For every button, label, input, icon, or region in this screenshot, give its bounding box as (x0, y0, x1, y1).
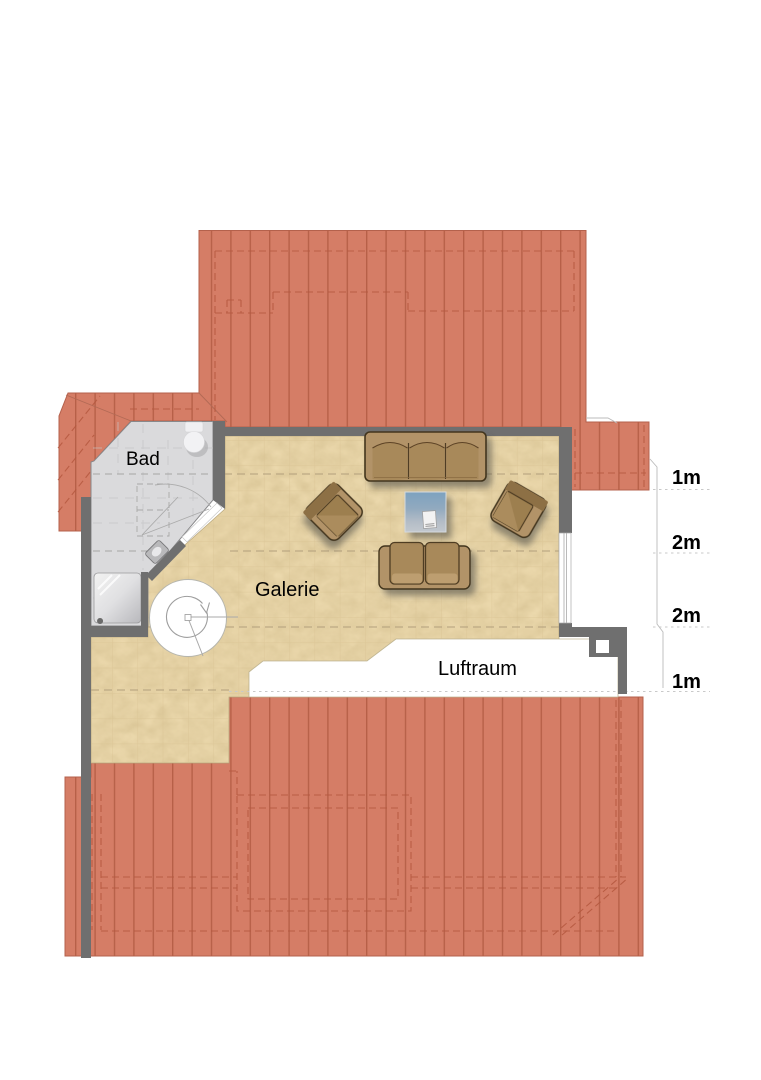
svg-text:1m: 1m (672, 671, 701, 693)
svg-text:2m: 2m (672, 532, 701, 554)
svg-text:Bad: Bad (126, 449, 160, 470)
svg-text:Luftraum: Luftraum (438, 658, 517, 680)
svg-text:1m: 1m (672, 467, 701, 489)
svg-text:Galerie: Galerie (255, 579, 319, 601)
svg-text:2m: 2m (672, 605, 701, 627)
